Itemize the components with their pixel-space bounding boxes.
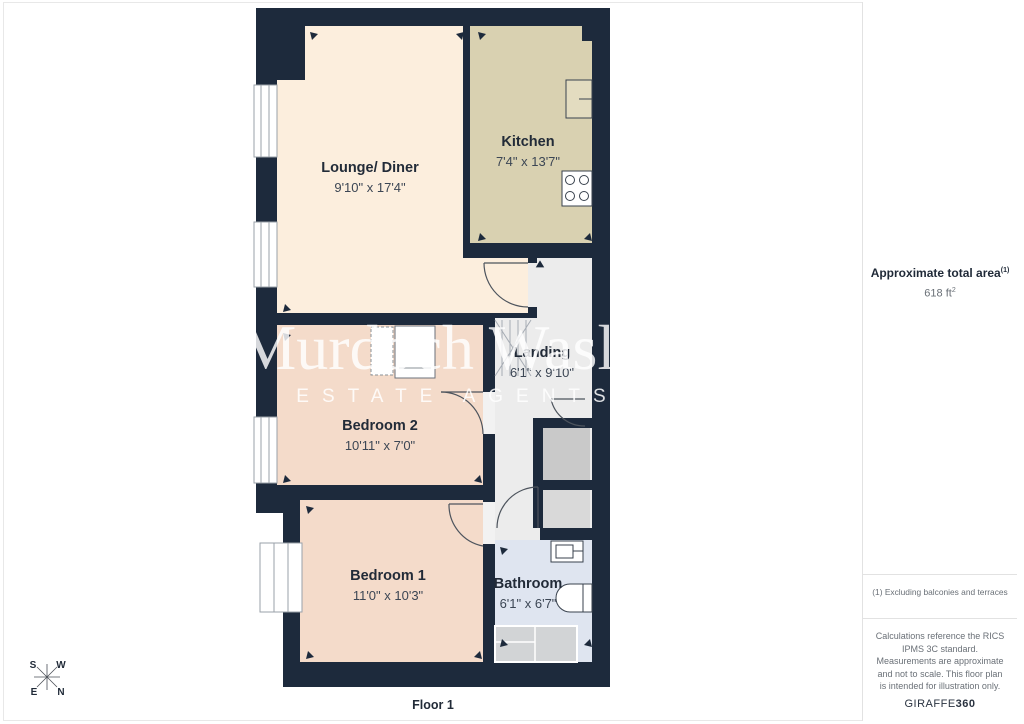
door-opening-bedroom2 [483,392,495,434]
room-dims: 11'0" x 10'3" [353,588,424,603]
floor-label: Floor 1 [412,698,454,712]
total-area-value: 618 ft2 [863,287,1017,300]
compass-w: W [56,660,66,671]
room-label: Bathroom [494,576,562,592]
sink-icon [551,541,583,562]
total-area-label: Approximate total area(1) [863,266,1017,280]
floorplan-drawing: Lounge/ Diner 9'10" x 17'4" Kitchen 7'4"… [0,0,862,724]
disclaimer-text: Calculations reference the RICS IPMS 3C … [863,630,1017,693]
window-bedroom1 [260,543,302,612]
room-label: Bedroom 1 [350,568,426,584]
compass-icon: S W E N [30,660,67,698]
giraffe360-logo: GIRAFFE360 [863,698,1017,710]
cupboard-2 [543,490,590,528]
area-footnote: (1) Excluding balconies and terraces [863,587,1017,597]
room-label: Landing [514,345,570,361]
sidebar-divider [863,618,1017,619]
window-bedroom2 [254,417,277,483]
bed-icon [395,326,435,378]
wardrobe-icon [371,327,393,375]
door-opening-lounge [528,263,537,307]
room-dims: 6'1" x 6'7" [500,596,557,611]
compass-s: S [30,660,37,671]
cupboards [533,418,592,540]
room-label: Bedroom 2 [342,418,418,434]
room-label: Lounge/ Diner [321,160,419,176]
oven-icon [566,80,592,118]
info-sidebar: Approximate total area(1) 618 ft2 (1) Ex… [862,2,1017,721]
bedroom2-furniture [371,326,435,378]
door-opening-bedroom1 [483,502,495,544]
shower-tray-icon [495,626,577,662]
compass-e: E [31,687,38,698]
compass-n: N [57,687,64,698]
cupboard-1 [543,428,590,480]
room-dims: 7'4" x 13'7" [496,154,560,169]
landing-floor [537,258,592,320]
room-dims: 9'10" x 17'4" [334,180,406,195]
total-area-footnote-marker: (1) [1001,267,1010,274]
hob-icon [562,171,592,206]
sidebar-divider [863,574,1017,575]
floorplan-page: Lounge/ Diner 9'10" x 17'4" Kitchen 7'4"… [0,0,1024,724]
room-dims: 6'1" x 9'10" [510,365,574,380]
room-dims: 10'11" x 7'0" [345,438,416,453]
window-lounge-2 [254,222,277,287]
window-lounge-1 [254,85,277,157]
total-area-text: Approximate total area [871,266,1001,280]
room-label: Kitchen [501,134,554,150]
